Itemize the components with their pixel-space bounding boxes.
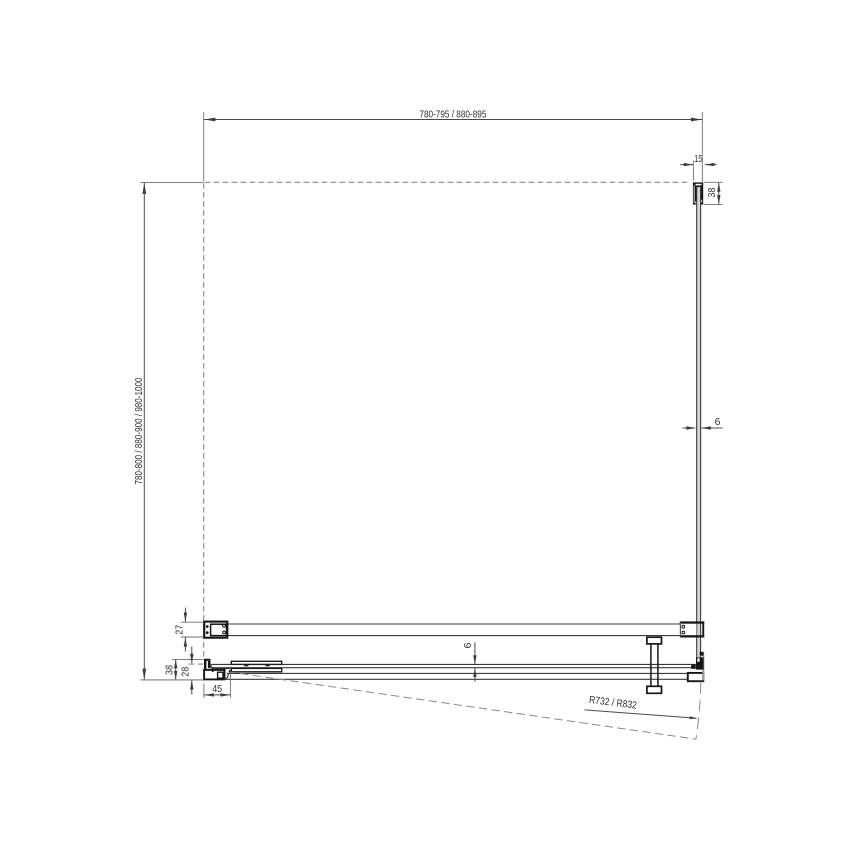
svg-text:6: 6	[463, 642, 474, 648]
svg-text:27: 27	[175, 624, 186, 634]
svg-text:15: 15	[694, 154, 702, 165]
svg-text:38: 38	[164, 665, 175, 675]
svg-text:45: 45	[212, 684, 222, 695]
svg-text:38: 38	[707, 187, 718, 197]
svg-text:28: 28	[181, 666, 192, 676]
svg-text:6: 6	[715, 417, 721, 428]
svg-text:780-800 / 880-900 / 980-1000: 780-800 / 880-900 / 980-1000	[134, 377, 145, 484]
svg-text:780-795 / 880-895: 780-795 / 880-895	[419, 109, 486, 120]
